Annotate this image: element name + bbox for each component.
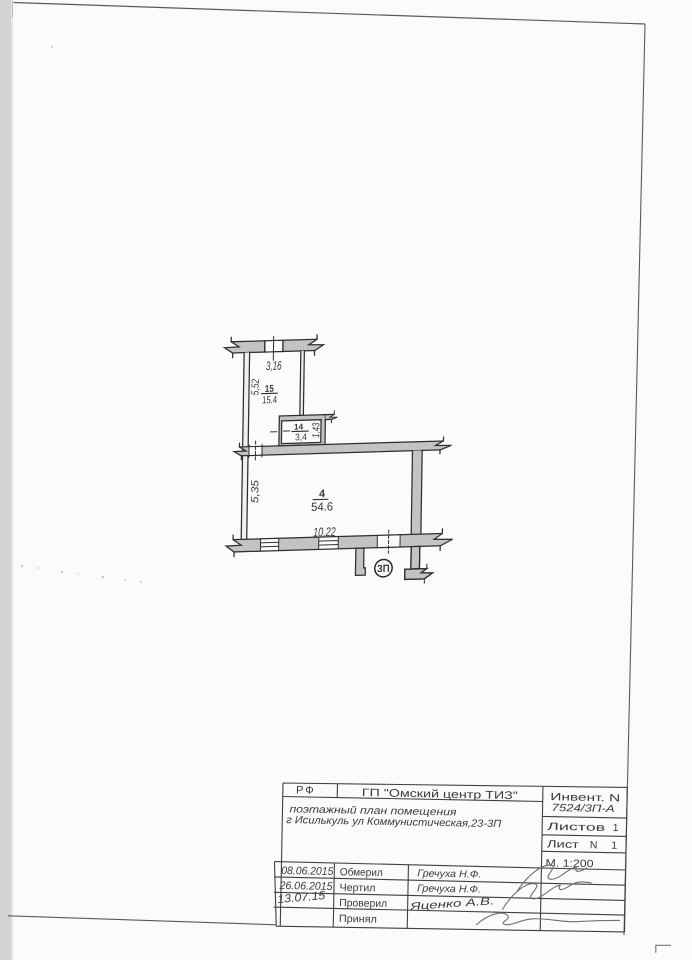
svg-text:5,35: 5,35 — [250, 479, 262, 503]
svg-text:1: 1 — [613, 822, 619, 834]
svg-text:Лист: Лист — [547, 838, 579, 851]
svg-text:08.06.2015: 08.06.2015 — [281, 865, 334, 878]
svg-text:5,52: 5,52 — [250, 378, 262, 396]
svg-text:3П: 3П — [377, 563, 390, 575]
svg-text:3,16: 3,16 — [266, 359, 282, 373]
svg-text:Чертил: Чертил — [339, 882, 375, 895]
svg-text:7524/3П-А: 7524/3П-А — [551, 802, 614, 815]
svg-text:Обмерил: Обмерил — [340, 866, 383, 879]
svg-text:3,4: 3,4 — [295, 432, 307, 443]
svg-text:N: N — [590, 839, 598, 851]
svg-text:Гречуха Н.Ф.: Гречуха Н.Ф. — [417, 868, 481, 880]
svg-text:Гречуха Н.Ф.: Гречуха Н.Ф. — [417, 883, 481, 895]
svg-text:Листов: Листов — [547, 821, 606, 834]
svg-text:Принял: Принял — [339, 913, 377, 926]
svg-text:54.6: 54.6 — [311, 499, 334, 514]
svg-text:15.4: 15.4 — [262, 395, 278, 406]
svg-text:1: 1 — [611, 840, 617, 852]
svg-text:10,22: 10,22 — [313, 525, 336, 540]
svg-text:РФ: РФ — [296, 784, 316, 796]
svg-text:1,43: 1,43 — [310, 423, 321, 439]
svg-text:4: 4 — [319, 488, 326, 500]
svg-text:14: 14 — [294, 421, 304, 431]
svg-text:Проверил: Проверил — [339, 897, 387, 910]
